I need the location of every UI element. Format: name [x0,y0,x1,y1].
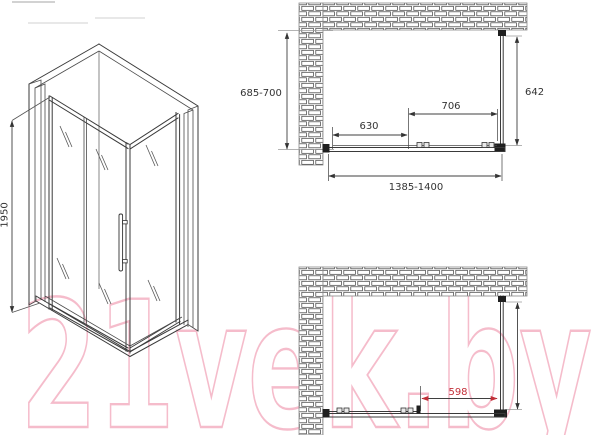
dim-door-span: 706 [409,101,497,114]
dim-door-span-label: 706 [441,101,460,112]
brick-wall-top [323,3,527,30]
dim-depth-range-label: 685-700 [240,88,282,99]
top-plan: 685-700 642 706 630 1385-1400 [240,3,544,193]
brick-wall-left [299,3,323,165]
cropped-artifact-lines [12,2,145,23]
dim-side-panel: 642 [517,37,544,145]
shower-enclosure-technical-drawing: 21vek.by [0,0,600,435]
drawing-canvas: 21vek.by [0,0,600,435]
dim-fixed-span-label: 630 [359,121,378,132]
brick-wall-left [299,267,323,435]
brick-wall-top [323,267,527,296]
dim-opening-label: 598 [448,387,467,398]
dim-depth-range: 685-700 [240,33,287,149]
dim-height-label: 1950 [0,202,11,227]
dim-width-range-label: 1385-1400 [389,182,444,193]
dim-width-range: 1385-1400 [329,176,501,193]
dim-fixed-span: 630 [333,121,407,135]
dim-side-panel-label: 642 [525,87,544,98]
plan-side-panel [495,30,507,152]
plan-door-track [323,143,506,153]
